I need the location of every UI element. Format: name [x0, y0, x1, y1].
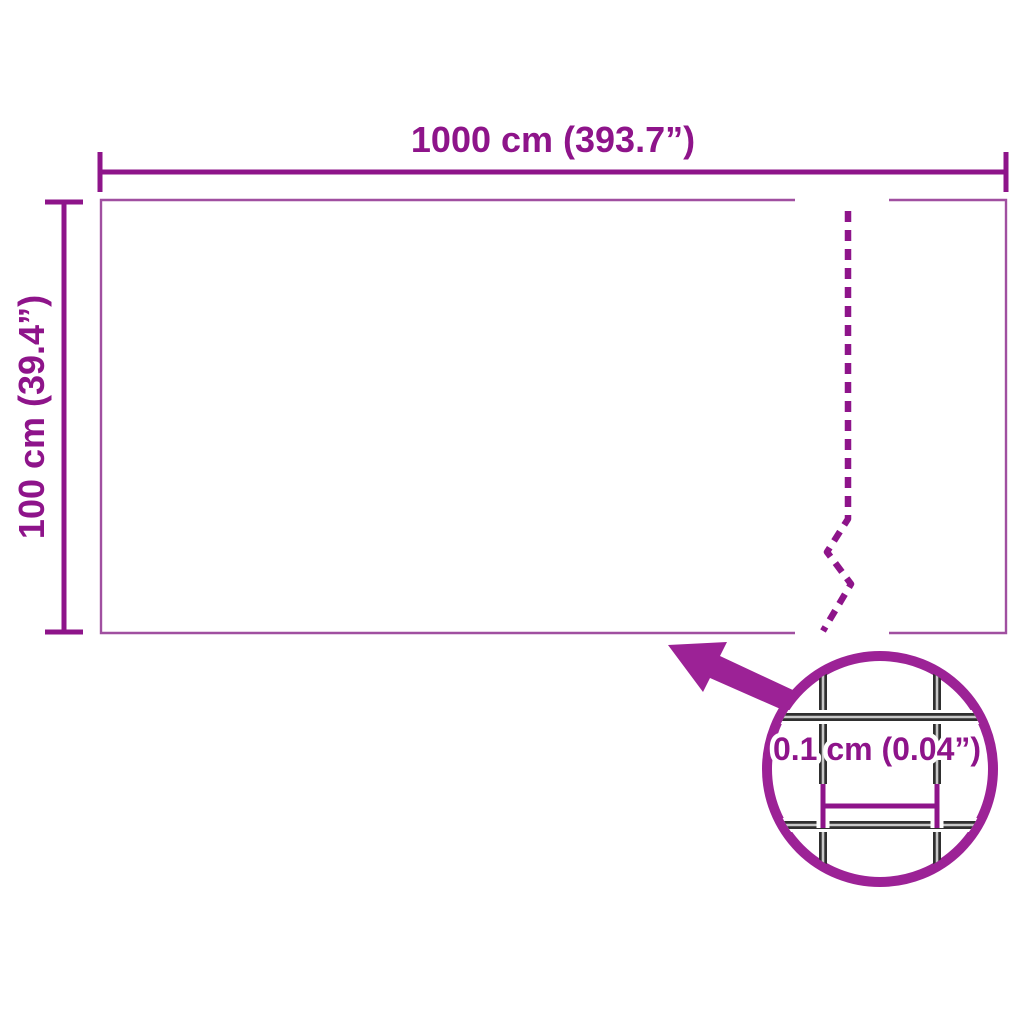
product-outline	[101, 200, 1006, 633]
break-line	[823, 211, 851, 631]
height-dimension: 100 cm (39.4”)	[11, 202, 83, 632]
height-dimension-label: 100 cm (39.4”)	[11, 295, 52, 539]
magnifier-circle	[767, 656, 993, 882]
width-dimension-label: 1000 cm (393.7”)	[411, 119, 695, 160]
dimension-diagram: 1000 cm (393.7”) 100 cm (39.4”)	[0, 0, 1024, 1024]
width-dimension: 1000 cm (393.7”)	[100, 119, 1006, 192]
mesh-dimension-label: 0.1 cm (0.04”)	[773, 731, 981, 767]
diagram-svg: 1000 cm (393.7”) 100 cm (39.4”)	[0, 0, 1024, 1024]
zoom-arrow-icon	[668, 642, 795, 711]
detail-callout: 0.1 cm (0.04”)	[668, 642, 998, 888]
